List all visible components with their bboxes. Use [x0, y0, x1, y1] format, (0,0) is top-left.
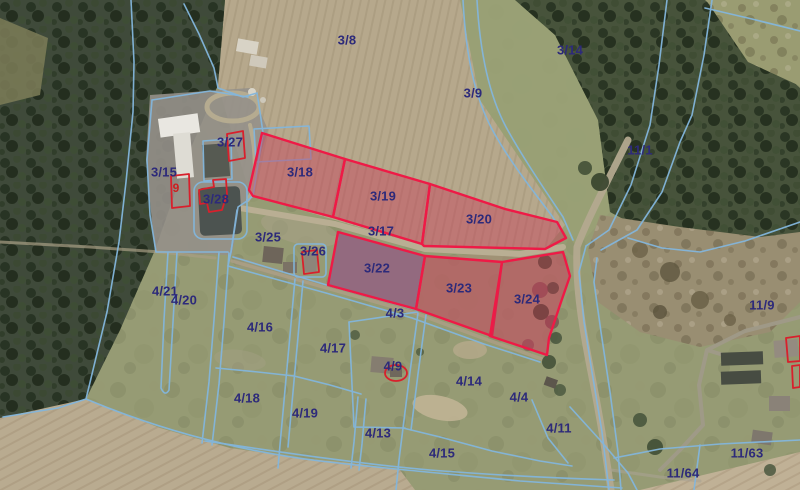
map-viewport[interactable]: 3/83/143/911/13/273/153/183/193/283/203/…: [0, 0, 800, 490]
aerial-basemap: [0, 0, 800, 490]
